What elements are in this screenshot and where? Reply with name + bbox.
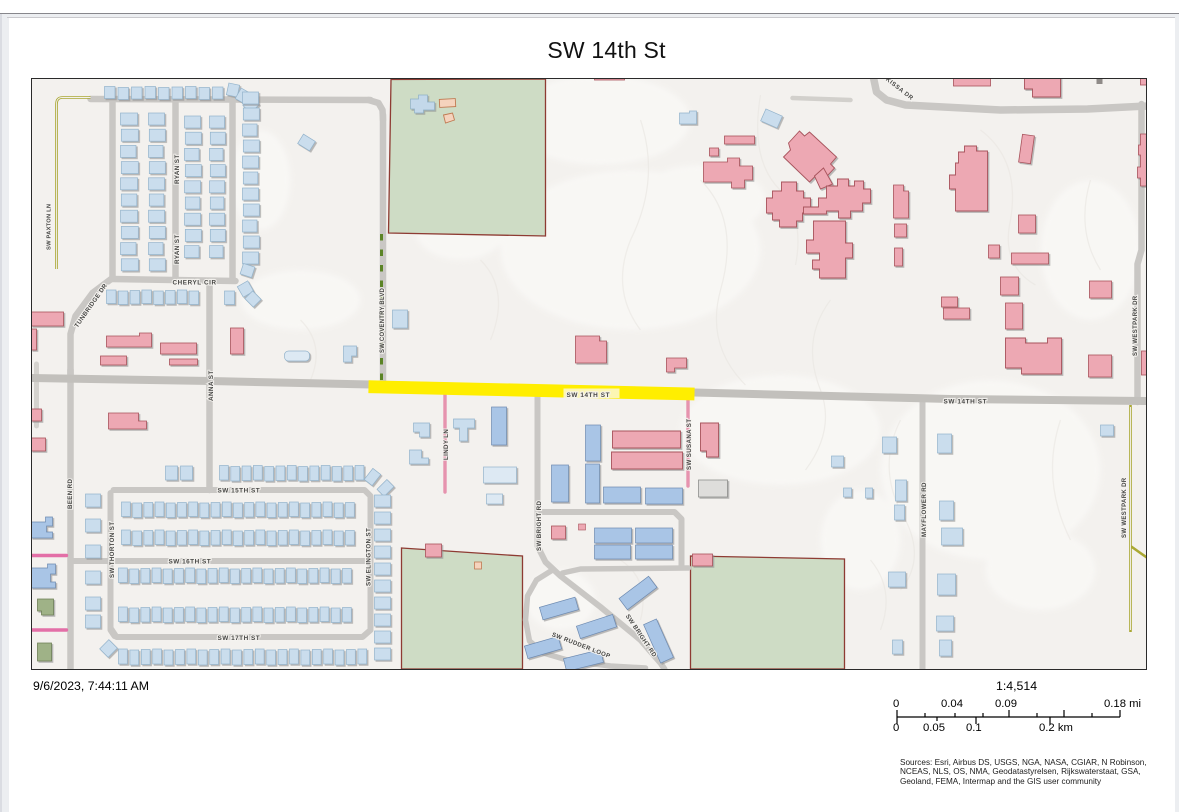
svg-text:BEEN RD: BEEN RD <box>67 478 74 508</box>
svg-text:RYAN ST: RYAN ST <box>174 154 181 184</box>
svg-text:SW COVENTRY BLVD: SW COVENTRY BLVD <box>380 287 386 353</box>
svg-text:LINDY LN: LINDY LN <box>443 428 450 459</box>
svg-text:ANNA ST: ANNA ST <box>208 370 215 401</box>
svg-text:SW 15TH ST: SW 15TH ST <box>217 487 260 494</box>
svg-text:SW 16TH ST: SW 16TH ST <box>168 558 211 565</box>
svg-text:SW PAXTON LN: SW PAXTON LN <box>46 203 52 249</box>
svg-text:SW 17TH ST: SW 17TH ST <box>217 635 260 642</box>
svg-text:SW ELINGTON ST: SW ELINGTON ST <box>365 528 372 586</box>
svg-text:CHERYL CIR: CHERYL CIR <box>172 279 216 286</box>
svg-text:RYAN ST: RYAN ST <box>174 234 181 264</box>
svg-text:SW 14TH ST: SW 14TH ST <box>943 398 987 405</box>
svg-text:SW SUSANA ST: SW SUSANA ST <box>686 418 693 469</box>
svg-text:SW WESTPARK DR: SW WESTPARK DR <box>1133 295 1139 356</box>
svg-text:SW THORTON ST: SW THORTON ST <box>109 521 116 577</box>
svg-text:SW WESTPARK DR: SW WESTPARK DR <box>1122 477 1128 538</box>
svg-text:SW BRIGHT RD: SW BRIGHT RD <box>536 500 543 550</box>
svg-text:SW 14TH ST: SW 14TH ST <box>566 392 610 399</box>
svg-text:MAYFLOWER RD: MAYFLOWER RD <box>921 482 928 537</box>
